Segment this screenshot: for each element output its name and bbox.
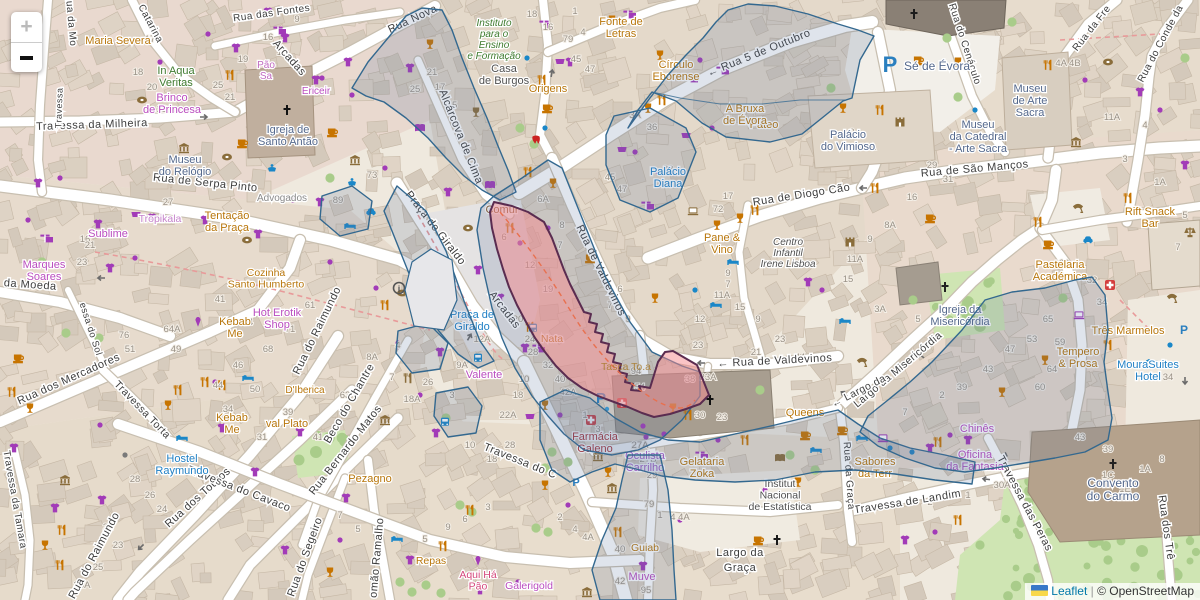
svg-text:P: P xyxy=(883,52,898,77)
svg-text:11A: 11A xyxy=(714,290,731,301)
svg-text:Kebab: Kebab xyxy=(216,412,248,424)
svg-text:1: 1 xyxy=(572,6,577,17)
svg-text:Instituto: Instituto xyxy=(476,18,511,29)
svg-text:Repas: Repas xyxy=(416,555,446,567)
svg-text:15: 15 xyxy=(843,274,854,285)
svg-text:do Carmo: do Carmo xyxy=(1087,489,1140,503)
svg-text:72: 72 xyxy=(713,204,724,215)
svg-text:4: 4 xyxy=(572,524,577,535)
svg-text:Letras: Letras xyxy=(606,28,637,40)
svg-text:de Estatística: de Estatística xyxy=(748,501,811,513)
svg-text:Rift Snack: Rift Snack xyxy=(1125,206,1176,218)
svg-text:21: 21 xyxy=(225,92,236,103)
svg-text:64A: 64A xyxy=(164,324,182,335)
svg-text:Palácio: Palácio xyxy=(830,129,866,141)
svg-text:Fonte de: Fonte de xyxy=(599,16,642,28)
svg-text:Sé de Évora: Sé de Évora xyxy=(904,58,970,73)
svg-text:5: 5 xyxy=(422,534,427,545)
svg-text:76: 76 xyxy=(119,330,130,341)
svg-text:7: 7 xyxy=(389,372,394,383)
svg-text:15: 15 xyxy=(735,302,746,313)
svg-text:- Arte Sacra: - Arte Sacra xyxy=(949,143,1008,155)
svg-text:P: P xyxy=(1180,323,1188,337)
svg-text:11A: 11A xyxy=(1104,112,1121,123)
svg-text:3: 3 xyxy=(485,502,490,513)
svg-text:In Aqua: In Aqua xyxy=(157,65,195,77)
svg-text:6: 6 xyxy=(462,514,467,525)
svg-text:Pastelaria: Pastelaria xyxy=(1036,259,1086,271)
svg-text:18: 18 xyxy=(527,9,538,20)
svg-text:10: 10 xyxy=(465,440,476,451)
svg-text:Santo Antão: Santo Antão xyxy=(258,136,318,148)
svg-text:23: 23 xyxy=(77,257,88,268)
svg-text:25: 25 xyxy=(213,80,224,91)
svg-text:Santo Humberto: Santo Humberto xyxy=(228,279,305,291)
svg-text:Nacional: Nacional xyxy=(760,490,801,502)
svg-text:Largo da: Largo da xyxy=(716,547,764,559)
svg-text:21: 21 xyxy=(85,240,96,251)
svg-text:Vino: Vino xyxy=(711,244,733,256)
svg-text:18: 18 xyxy=(513,390,524,401)
svg-text:Soares: Soares xyxy=(27,271,62,283)
svg-text:16: 16 xyxy=(543,22,554,33)
svg-text:Pão: Pão xyxy=(257,60,275,71)
svg-text:18A: 18A xyxy=(404,394,422,405)
svg-text:30: 30 xyxy=(695,410,706,421)
svg-text:Brinco: Brinco xyxy=(156,92,187,104)
svg-text:Ericeir: Ericeir xyxy=(302,86,331,97)
svg-text:4A 4B: 4A 4B xyxy=(1055,58,1080,69)
svg-text:de Arte: de Arte xyxy=(1013,95,1048,107)
svg-text:i: i xyxy=(398,284,401,294)
svg-text:Hostel: Hostel xyxy=(166,453,197,465)
svg-text:Graça: Graça xyxy=(724,562,757,574)
svg-text:Tropikala: Tropikala xyxy=(139,213,182,225)
svg-text:4A: 4A xyxy=(582,532,594,543)
svg-text:4 4A: 4 4A xyxy=(670,512,690,523)
svg-text:41: 41 xyxy=(313,432,324,443)
svg-text:Aqui Há: Aqui Há xyxy=(459,569,497,581)
svg-text:17: 17 xyxy=(723,191,734,202)
svg-text:16: 16 xyxy=(263,32,274,43)
svg-text:Marques: Marques xyxy=(23,259,66,271)
svg-text:Tentação: Tentação xyxy=(205,210,250,222)
svg-text:79: 79 xyxy=(563,34,574,45)
svg-text:5: 5 xyxy=(355,524,360,535)
svg-text:49: 49 xyxy=(171,344,182,355)
svg-text:Me: Me xyxy=(227,328,242,340)
svg-text:Raymundo: Raymundo xyxy=(155,465,208,477)
svg-text:23: 23 xyxy=(693,340,704,351)
svg-text:Maria Severa: Maria Severa xyxy=(85,35,151,47)
svg-text:12: 12 xyxy=(695,314,706,325)
svg-text:9: 9 xyxy=(755,314,760,325)
svg-text:Travessa: Travessa xyxy=(53,87,64,128)
svg-text:7: 7 xyxy=(725,279,730,290)
svg-text:Valente: Valente xyxy=(466,369,503,381)
svg-text:1A: 1A xyxy=(1139,464,1151,475)
svg-text:28: 28 xyxy=(130,474,141,485)
svg-text:Museu: Museu xyxy=(168,154,201,166)
svg-text:46: 46 xyxy=(233,360,244,371)
svg-text:Ensino: Ensino xyxy=(479,40,510,51)
svg-text:34: 34 xyxy=(1163,372,1174,383)
svg-text:de Burgos: de Burgos xyxy=(479,75,530,87)
svg-text:24: 24 xyxy=(157,504,168,515)
svg-text:4: 4 xyxy=(1142,120,1147,131)
svg-text:26: 26 xyxy=(145,490,156,501)
svg-text:Pezagno: Pezagno xyxy=(348,473,391,485)
svg-text:31: 31 xyxy=(257,432,268,443)
svg-text:Shop: Shop xyxy=(264,319,290,331)
svg-text:4: 4 xyxy=(580,27,585,38)
svg-text:de Princesa: de Princesa xyxy=(143,104,202,116)
svg-text:9: 9 xyxy=(867,234,872,245)
svg-text:do Relógio: do Relógio xyxy=(159,166,212,178)
svg-text:Me: Me xyxy=(224,424,239,436)
svg-text:68: 68 xyxy=(263,344,274,355)
svg-text:11A: 11A xyxy=(847,254,864,265)
svg-text:7: 7 xyxy=(337,510,342,521)
svg-text:Irene Lisboa: Irene Lisboa xyxy=(760,259,815,270)
svg-text:8A: 8A xyxy=(366,352,378,363)
svg-text:7: 7 xyxy=(1175,242,1180,253)
svg-text:45: 45 xyxy=(571,54,582,65)
svg-text:Sacra: Sacra xyxy=(1016,107,1046,119)
svg-text:Galerigold: Galerigold xyxy=(505,580,553,592)
svg-text:e Formação: e Formação xyxy=(467,51,521,62)
svg-text:39: 39 xyxy=(1103,444,1114,455)
svg-text:para o: para o xyxy=(479,29,509,40)
svg-text:39: 39 xyxy=(283,407,294,418)
svg-text:do Vimioso: do Vimioso xyxy=(821,141,875,153)
svg-text:16: 16 xyxy=(907,192,918,203)
svg-text:50: 50 xyxy=(250,384,261,395)
svg-text:18: 18 xyxy=(133,67,144,78)
svg-text:73: 73 xyxy=(367,170,378,181)
svg-text:Bar: Bar xyxy=(1141,218,1158,230)
svg-text:61: 61 xyxy=(305,300,316,311)
svg-text:Tasca To.a: Tasca To.a xyxy=(601,361,651,373)
svg-text:23: 23 xyxy=(775,334,786,345)
svg-text:da Catedral: da Catedral xyxy=(950,131,1007,143)
svg-text:41: 41 xyxy=(215,294,226,305)
svg-text:Convento: Convento xyxy=(1087,476,1139,490)
svg-text:8A: 8A xyxy=(884,220,896,231)
svg-text:Igreja de: Igreja de xyxy=(267,124,310,136)
svg-text:5: 5 xyxy=(1182,210,1187,221)
svg-text:23: 23 xyxy=(717,412,728,423)
svg-text:3: 3 xyxy=(1122,154,1127,165)
svg-text:44: 44 xyxy=(213,380,224,391)
svg-text:Origens: Origens xyxy=(529,83,568,95)
svg-text:Pane &: Pane & xyxy=(704,232,741,244)
svg-text:8: 8 xyxy=(1159,454,1164,465)
svg-text:Kebab: Kebab xyxy=(219,316,251,328)
svg-text:Veritas: Veritas xyxy=(159,77,193,89)
svg-text:Museu: Museu xyxy=(1013,83,1046,95)
svg-text:Sublime: Sublime xyxy=(88,228,128,240)
svg-text:Hotel: Hotel xyxy=(1135,371,1161,383)
svg-text:9: 9 xyxy=(725,268,730,279)
svg-text:9: 9 xyxy=(445,522,450,533)
svg-text:1A: 1A xyxy=(1154,177,1166,188)
svg-text:Hot Erotik: Hot Erotik xyxy=(253,307,302,319)
svg-text:23: 23 xyxy=(113,540,124,551)
svg-text:D'Iberica: D'Iberica xyxy=(285,385,325,396)
svg-text:19: 19 xyxy=(238,54,249,65)
svg-text:5: 5 xyxy=(915,314,920,325)
svg-text:Sa: Sa xyxy=(260,71,273,82)
svg-text:27: 27 xyxy=(163,197,174,208)
svg-text:1: 1 xyxy=(965,490,970,501)
svg-text:Advogados: Advogados xyxy=(257,193,307,204)
svg-text:MouraSuites: MouraSuites xyxy=(1117,359,1179,371)
svg-text:da Praça: da Praça xyxy=(205,222,250,234)
svg-text:Casa: Casa xyxy=(491,63,518,75)
svg-text:Centro: Centro xyxy=(773,237,803,248)
svg-text:26: 26 xyxy=(423,377,434,388)
svg-text:51: 51 xyxy=(125,344,136,355)
svg-text:val Plato: val Plato xyxy=(266,418,308,430)
svg-text:Infantil: Infantil xyxy=(773,248,803,259)
svg-text:2: 2 xyxy=(557,512,562,523)
svg-text:22A: 22A xyxy=(500,410,518,421)
svg-text:3A: 3A xyxy=(874,304,886,315)
svg-text:Cozinha: Cozinha xyxy=(247,267,286,279)
svg-text:Pão: Pão xyxy=(469,581,488,593)
svg-text:47: 47 xyxy=(585,64,596,75)
svg-text:Museu: Museu xyxy=(961,119,994,131)
